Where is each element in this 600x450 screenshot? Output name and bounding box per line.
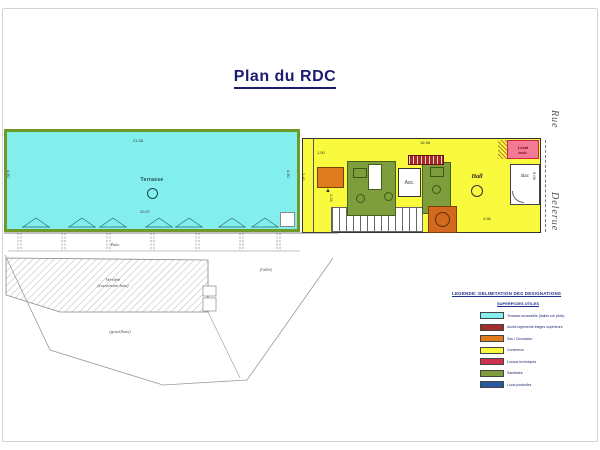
sanitary-inset: [368, 164, 382, 190]
legend-swatch: [480, 347, 504, 354]
street-name-word2: Delerue: [549, 192, 560, 231]
elevator-label: Asc.: [405, 180, 415, 186]
room-number-icon: [471, 185, 483, 197]
legend-item: Local poubelles: [480, 381, 584, 388]
legend-item-label: Locaux techniques: [507, 360, 536, 364]
walkway-label: Patio: [95, 242, 135, 247]
building-area: ▲ Asc. Local tech. Bac Hall: [302, 138, 541, 233]
legend-swatch: [480, 324, 504, 331]
wc-fixture-icon: [384, 192, 393, 201]
wc-fixture-icon: [430, 167, 444, 177]
legend-item-label: Accès logements étages supérieurs: [507, 325, 562, 329]
wc-fixture-icon: [356, 194, 365, 203]
terrace-label: Terrasse: [141, 177, 164, 183]
legend-item: Commerce: [480, 347, 584, 354]
sanitary-room-1: [347, 161, 396, 216]
storage-label: Bac: [521, 173, 529, 178]
technical-duct: [428, 206, 457, 233]
wc-fixture-icon: [353, 168, 367, 178]
entrance-arrow-icon: ▲: [325, 188, 331, 194]
local-tech-line2: tech.: [518, 150, 527, 155]
street-name-word1: Rue: [549, 110, 560, 129]
site-outline: [0, 228, 350, 396]
page-title: Plan du RDC: [234, 68, 336, 89]
storage-room: Bac: [510, 164, 540, 205]
duct-circle-icon: [435, 212, 450, 227]
legend-item-label: Sas / Circulation: [507, 337, 532, 341]
terrace-area: Terrasse: [4, 129, 300, 232]
page-title-wrap: Plan du RDC: [170, 68, 400, 89]
legend-item-label: Commerce: [507, 348, 524, 352]
gravel-label: (gravillons): [85, 329, 155, 334]
alley-label: (l'allée): [246, 267, 286, 272]
legend-title: LEGENDE: DELIMITATION DES DESIGNATIONS: [452, 291, 584, 296]
room-number-icon: [147, 188, 158, 199]
terrace-corner-box: [280, 212, 295, 227]
legend-item: Sanitaires: [480, 370, 584, 377]
property-boundary-line: [545, 140, 546, 232]
plan-sheet: Plan du RDC Terrasse ▲: [0, 0, 600, 450]
legend-swatch: [480, 335, 504, 342]
legend-items: Terrasse accessible (dalles sur plots)Ac…: [480, 312, 584, 388]
hall-label: Hall: [471, 174, 482, 180]
local-tech-box: Local tech.: [507, 140, 539, 159]
legend-subtitle: SUPERFICIES UTILES: [452, 301, 584, 306]
building-wall-line: [313, 139, 314, 232]
legend: LEGENDE: DELIMITATION DES DESIGNATIONS S…: [452, 291, 584, 393]
door-arc-icon: [512, 191, 524, 203]
access-hatch-bar: [408, 155, 444, 165]
legend-item: Sas / Circulation: [480, 335, 584, 342]
legend-swatch: [480, 370, 504, 377]
door-hatch-icon: [498, 140, 507, 159]
legend-swatch: [480, 312, 504, 319]
glass-roof-label-2: (couverture bois): [58, 283, 168, 288]
glass-roof-label-1: Verrière: [58, 277, 168, 282]
legend-item-label: Terrasse accessible (dalles sur plots): [507, 314, 564, 318]
legend-swatch: [480, 358, 504, 365]
legend-item: Accès logements étages supérieurs: [480, 324, 584, 331]
legend-swatch: [480, 381, 504, 388]
legend-item: Locaux techniques: [480, 358, 584, 365]
hall-label-group: Hall: [471, 165, 483, 197]
entrance-sas: [317, 167, 344, 188]
wc-fixture-icon: [432, 185, 441, 194]
terrace-label-group: Terrasse: [7, 168, 297, 199]
elevator-box: Asc.: [398, 168, 421, 197]
legend-item-label: Sanitaires: [507, 371, 523, 375]
legend-item: Terrasse accessible (dalles sur plots): [480, 312, 584, 319]
legend-item-label: Local poubelles: [507, 383, 531, 387]
